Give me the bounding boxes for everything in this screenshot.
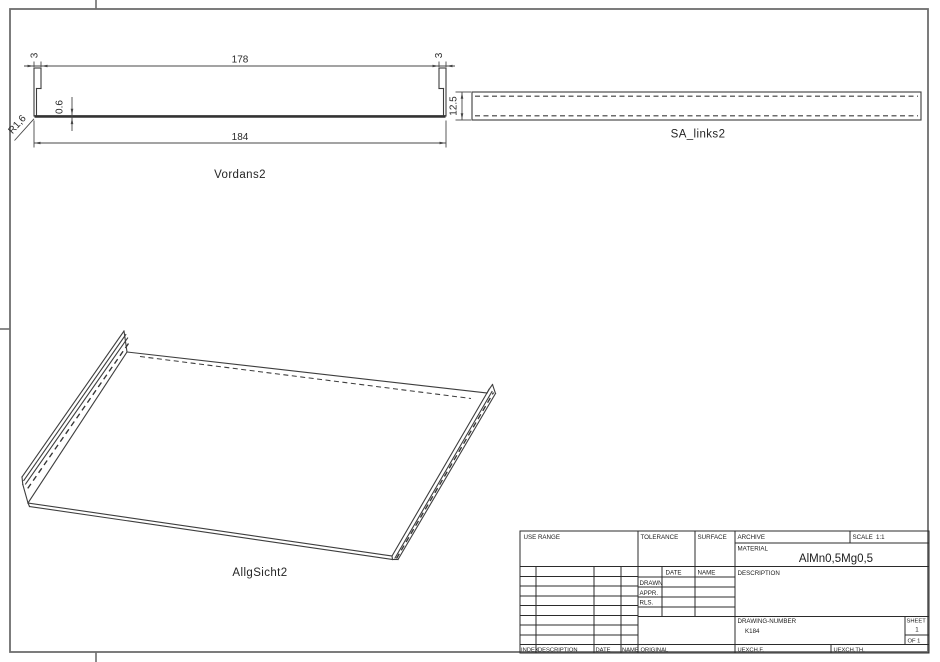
date-header: DATE bbox=[666, 570, 682, 577]
date-col-label: DATE bbox=[596, 648, 611, 654]
description-col-label: DESCRIPTION bbox=[538, 648, 578, 654]
sheet-value: 1 bbox=[915, 627, 919, 634]
appr-label: APPR. bbox=[640, 590, 659, 597]
name-col-label: NAME bbox=[622, 648, 639, 654]
side-view-dimensions: 12.5 bbox=[449, 92, 472, 120]
side-view-label: SA_links2 bbox=[671, 129, 726, 141]
front-view-dimensions: 3 178 3 0.6 R1,6 184 bbox=[7, 52, 455, 147]
archive-label: ARCHIVE bbox=[738, 534, 766, 541]
drawn-label: DRAWN bbox=[640, 580, 663, 587]
iso-left-flange bbox=[22, 331, 129, 503]
dim-height: 12.5 bbox=[449, 96, 460, 116]
uexchth-label: UEXCH.TH. bbox=[834, 648, 866, 654]
scale-value: 1:1 bbox=[876, 534, 885, 541]
iso-view: AllgSicht2 bbox=[22, 331, 496, 579]
drawing-number-label: DRAWING-NUMBER bbox=[738, 618, 797, 625]
index-col-label: INDEX bbox=[521, 648, 539, 654]
dim-inner-width: 178 bbox=[232, 55, 249, 66]
front-view-profile bbox=[34, 68, 446, 116]
sheet-frame bbox=[0, 0, 928, 662]
hidden-bend-line bbox=[140, 357, 471, 399]
material-label: MATERIAL bbox=[738, 546, 769, 553]
side-view: 12.5 SA_links2 bbox=[449, 92, 922, 141]
dim-flange-left: 3 bbox=[30, 52, 41, 58]
front-view-label: Vordans2 bbox=[214, 169, 266, 181]
uexchf-label: UEXCH.F. bbox=[738, 648, 765, 654]
description-label: DESCRIPTION bbox=[738, 570, 780, 577]
drawing-number-value: K184 bbox=[745, 628, 760, 635]
iso-view-label: AllgSicht2 bbox=[232, 567, 287, 579]
scale-label: SCALE bbox=[853, 534, 873, 541]
dim-overall-width: 184 bbox=[232, 132, 249, 143]
use-range-label: USE RANGE bbox=[524, 534, 560, 541]
title-block: USE RANGE TOLERANCE SURFACE ARCHIVE SCAL… bbox=[520, 531, 929, 654]
iso-panel bbox=[28, 352, 487, 560]
material-value: AlMn0,5Mg0,5 bbox=[799, 553, 873, 565]
name-header: NAME bbox=[698, 570, 716, 577]
dim-thickness: 0.6 bbox=[55, 100, 66, 114]
drawing-border bbox=[10, 9, 928, 652]
original-label: ORIGINAL bbox=[641, 648, 669, 654]
sheet-label: SHEET bbox=[907, 619, 927, 625]
front-view: 3 178 3 0.6 R1,6 184 Vordans2 bbox=[7, 52, 455, 181]
rls-label: RLS. bbox=[640, 600, 654, 607]
dim-flange-right: 3 bbox=[434, 52, 445, 58]
surface-label: SURFACE bbox=[698, 534, 727, 541]
cad-drawing-sheet: 3 178 3 0.6 R1,6 184 Vordans2 bbox=[0, 0, 940, 662]
of-value: OF 1 bbox=[908, 639, 921, 645]
iso-right-flange bbox=[392, 385, 496, 560]
tolerance-label: TOLERANCE bbox=[641, 534, 679, 541]
